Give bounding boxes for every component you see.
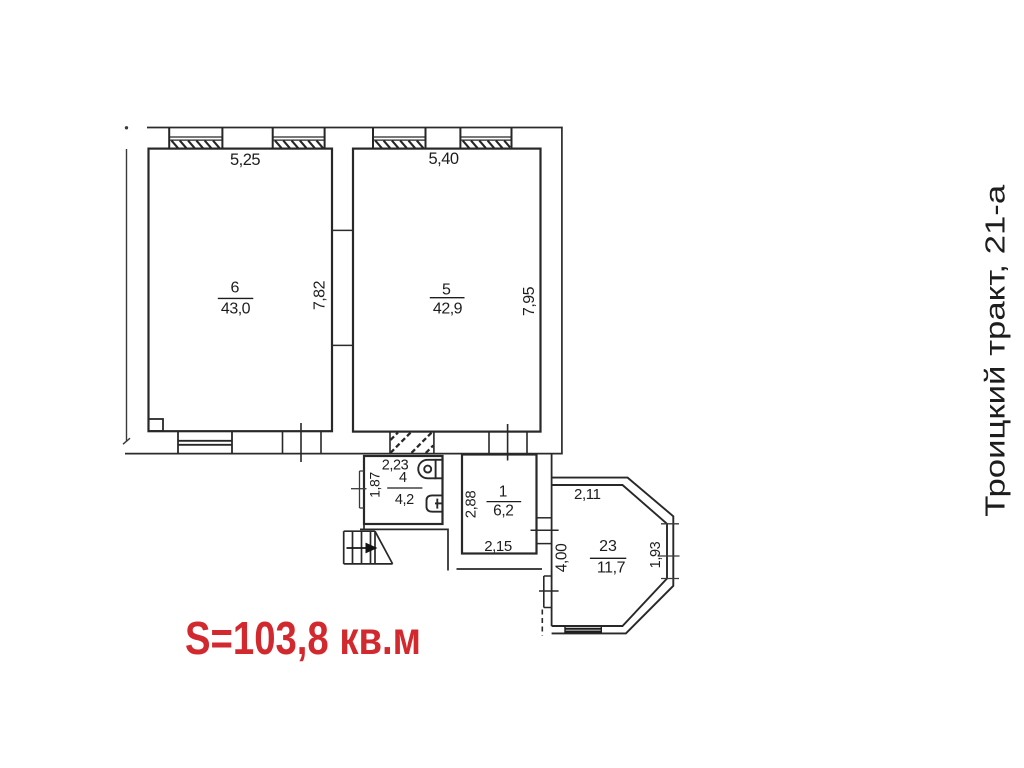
svg-text:6,2: 6,2 xyxy=(493,503,513,520)
svg-text:23: 23 xyxy=(599,538,617,555)
svg-text:7,82: 7,82 xyxy=(312,280,329,310)
svg-text:6: 6 xyxy=(231,280,240,297)
svg-text:5,25: 5,25 xyxy=(230,151,260,169)
svg-text:2,15: 2,15 xyxy=(484,538,512,555)
svg-text:S=103,8 кв.м: S=103,8 кв.м xyxy=(185,612,421,664)
svg-text:5: 5 xyxy=(442,282,451,299)
svg-text:Троицкий тракт, 21-а: Троицкий тракт, 21-а xyxy=(979,184,1010,517)
svg-text:2,88: 2,88 xyxy=(462,491,479,519)
svg-text:2,11: 2,11 xyxy=(574,486,601,503)
svg-text:4: 4 xyxy=(399,470,407,486)
svg-text:43,0: 43,0 xyxy=(221,301,251,318)
svg-text:1,87: 1,87 xyxy=(367,472,383,498)
svg-text:11,7: 11,7 xyxy=(597,559,626,576)
svg-text:1: 1 xyxy=(499,483,508,500)
svg-text:42,9: 42,9 xyxy=(433,300,463,317)
svg-text:7,95: 7,95 xyxy=(521,286,538,316)
svg-text:4,00: 4,00 xyxy=(553,543,570,572)
svg-text:1,93: 1,93 xyxy=(648,541,664,568)
svg-text:5,40: 5,40 xyxy=(428,150,458,168)
svg-text:4,2: 4,2 xyxy=(395,492,414,508)
